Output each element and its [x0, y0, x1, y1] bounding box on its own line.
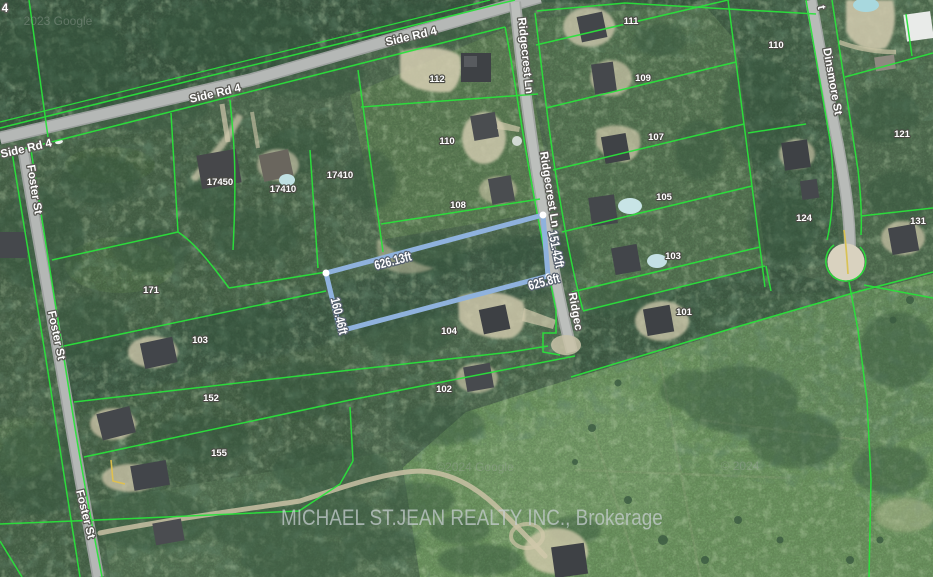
svg-text:105: 105 [656, 192, 673, 203]
svg-text:17410: 17410 [327, 170, 353, 181]
svg-text:107: 107 [648, 132, 664, 143]
svg-text:103: 103 [665, 251, 681, 262]
svg-text:4: 4 [2, 3, 9, 15]
svg-text:112: 112 [429, 74, 444, 85]
svg-text:102: 102 [436, 384, 452, 395]
svg-text:152: 152 [203, 393, 219, 404]
svg-text:© 2024: © 2024 [721, 459, 760, 473]
svg-text:109: 109 [635, 73, 651, 84]
svg-text:104: 104 [441, 326, 458, 337]
svg-text:17450: 17450 [207, 177, 233, 188]
svg-text:110: 110 [439, 136, 454, 147]
svg-text:©2024 Google: ©2024 Google [436, 460, 514, 474]
svg-text:124: 124 [796, 213, 813, 224]
svg-text:103: 103 [192, 335, 208, 346]
svg-text:MICHAEL ST.JEAN REALTY INC., B: MICHAEL ST.JEAN REALTY INC., Brokerage [281, 506, 663, 531]
svg-text:131: 131 [910, 216, 927, 227]
svg-text:171: 171 [143, 285, 160, 296]
svg-text:17410: 17410 [270, 184, 296, 195]
svg-text:111: 111 [624, 16, 640, 27]
svg-text:2023 Google: 2023 Google [24, 14, 93, 28]
svg-text:155: 155 [211, 448, 228, 459]
svg-text:110: 110 [768, 40, 783, 51]
svg-text:101: 101 [676, 307, 693, 318]
svg-text:121: 121 [894, 129, 911, 140]
svg-text:108: 108 [450, 200, 466, 211]
